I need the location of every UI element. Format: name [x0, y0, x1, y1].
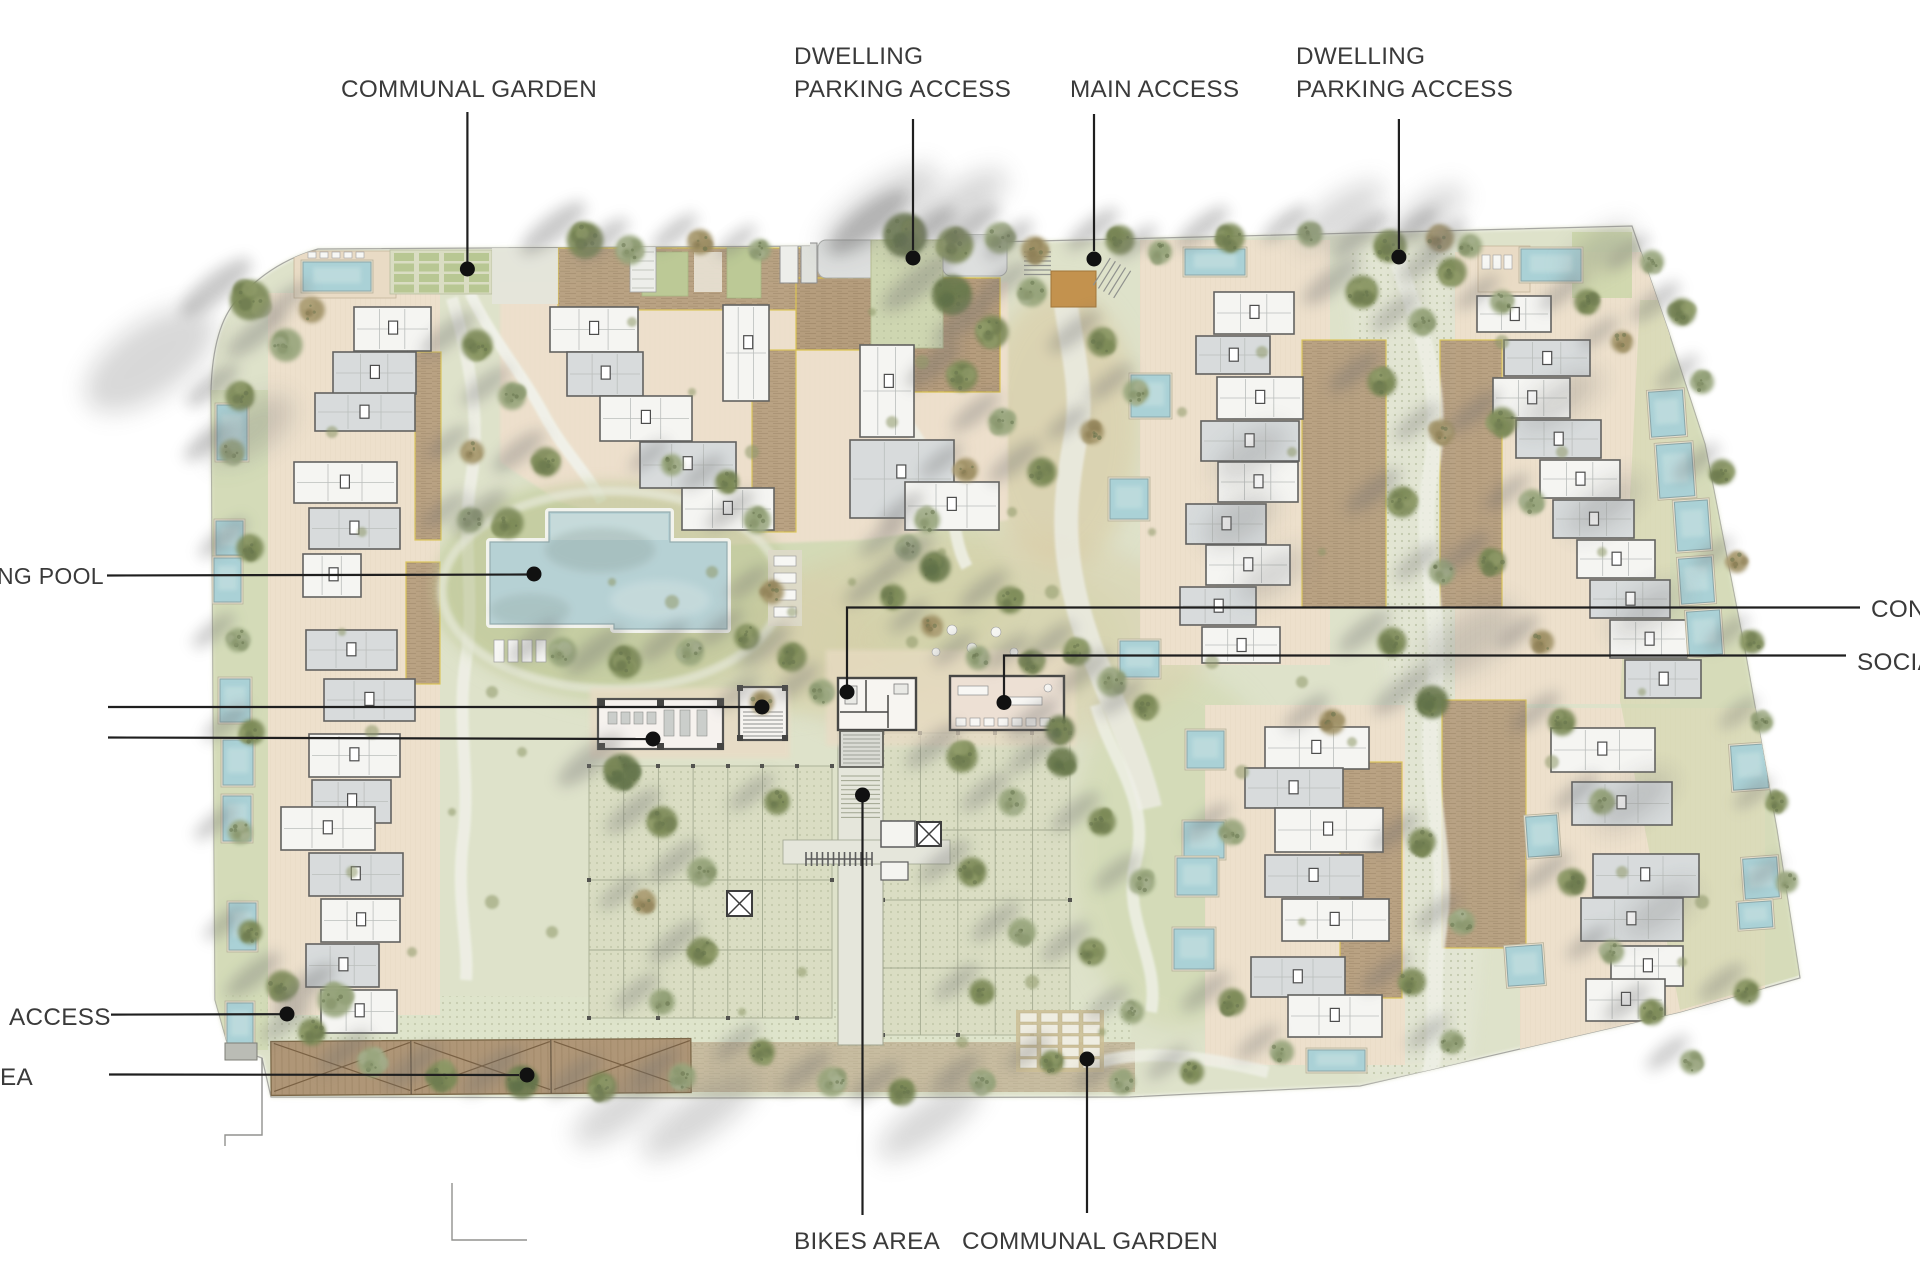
- svg-text:PARKING ACCESS: PARKING ACCESS: [1296, 76, 1513, 103]
- svg-text:BIKES AREA: BIKES AREA: [794, 1228, 941, 1255]
- svg-text:NG POOL: NG POOL: [0, 563, 104, 589]
- svg-text:EA: EA: [0, 1064, 34, 1091]
- svg-text:DWELLING: DWELLING: [1296, 43, 1425, 70]
- svg-text:COMMUNAL GARDEN: COMMUNAL GARDEN: [341, 76, 597, 103]
- svg-text:PARKING ACCESS: PARKING ACCESS: [794, 76, 1011, 103]
- svg-text:COMMUNAL GARDEN: COMMUNAL GARDEN: [962, 1228, 1218, 1255]
- svg-text:MAIN ACCESS: MAIN ACCESS: [1070, 76, 1239, 103]
- svg-text:CON: CON: [1871, 596, 1920, 623]
- svg-text:DWELLING: DWELLING: [794, 43, 923, 70]
- svg-text:ACCESS: ACCESS: [9, 1004, 111, 1031]
- svg-text:SOCIA: SOCIA: [1857, 649, 1920, 676]
